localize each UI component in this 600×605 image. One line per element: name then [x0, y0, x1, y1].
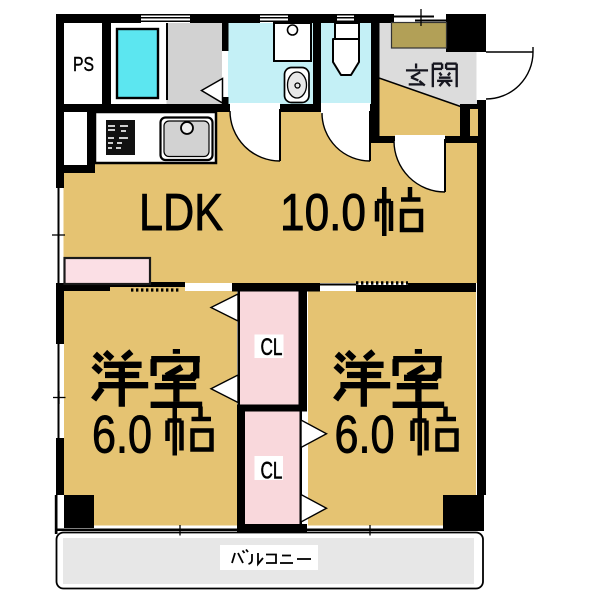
svg-text:PS: PS	[73, 53, 94, 76]
svg-text:6.0: 6.0	[92, 406, 152, 465]
svg-text:CL: CL	[261, 334, 283, 361]
svg-text:6.0: 6.0	[335, 406, 395, 465]
svg-text:CL: CL	[261, 458, 283, 485]
svg-text:LDK: LDK	[139, 184, 223, 242]
svg-text:10.0: 10.0	[280, 184, 366, 242]
